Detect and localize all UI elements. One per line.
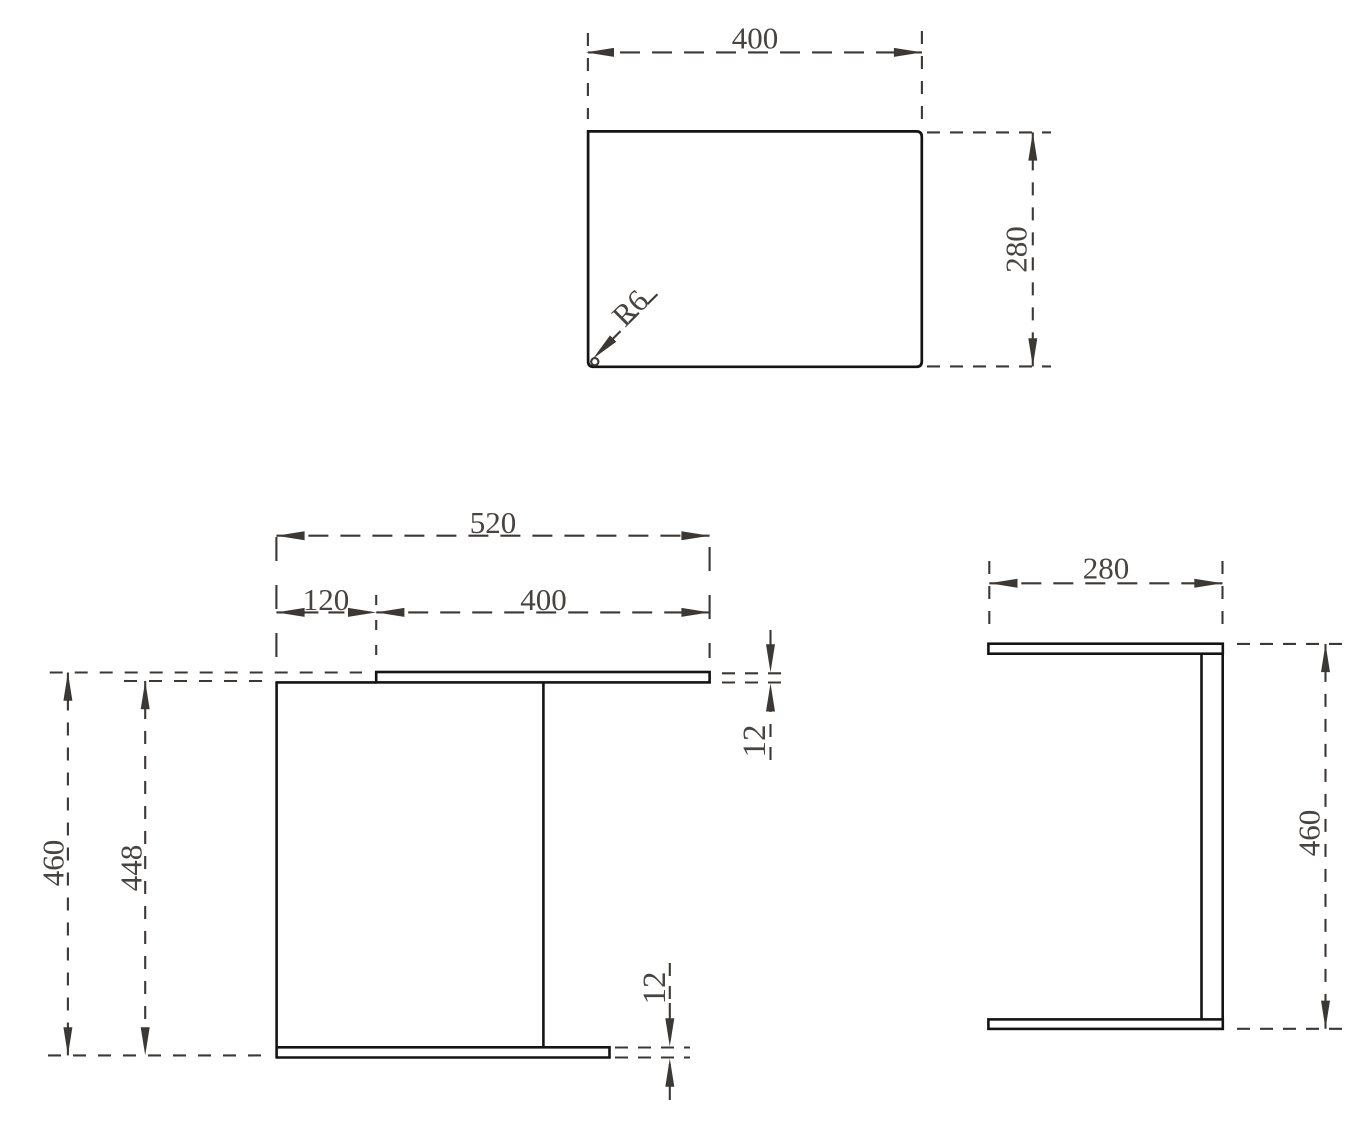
svg-text:520: 520 (470, 505, 517, 540)
svg-text:460: 460 (36, 840, 71, 887)
svg-text:12: 12 (637, 972, 673, 1005)
svg-text:460: 460 (1292, 810, 1327, 857)
svg-text:280: 280 (1083, 551, 1130, 586)
svg-text:448: 448 (114, 845, 149, 892)
svg-text:400: 400 (520, 582, 567, 617)
svg-text:12: 12 (737, 725, 773, 758)
svg-text:R6: R6 (605, 283, 655, 333)
svg-text:280: 280 (999, 226, 1034, 273)
svg-text:400: 400 (732, 21, 779, 56)
svg-text:120: 120 (303, 582, 350, 617)
